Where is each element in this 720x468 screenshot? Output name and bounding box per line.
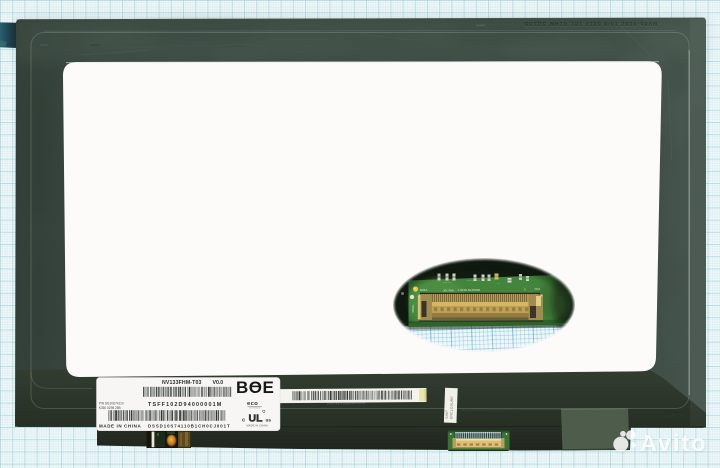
svg-text:C18 C21 R31: C18 C21 R31 <box>466 280 480 282</box>
svg-text:M32A: M32A <box>420 288 427 292</box>
svg-text:1PSD10S74110B1CH0CJ001T: 1PSD10S74110B1CH0CJ001T <box>327 402 366 405</box>
svg-text:NV133FHM-T03: NV133FHM-T03 <box>162 380 202 386</box>
svg-text:DSSD10S74110B1CH0CJ001T: DSSD10S74110B1CH0CJ001T <box>148 423 231 428</box>
svg-text:V: V <box>524 288 526 292</box>
svg-text:BOE: BOE <box>236 378 274 397</box>
svg-text:V0.0: V0.0 <box>213 380 224 386</box>
svg-text:CN1: CN1 <box>535 287 541 291</box>
svg-text:J01 R08: J01 R08 <box>443 289 454 293</box>
svg-text:MADE IN CHINA: MADE IN CHINA <box>247 424 269 427</box>
svg-text:SC1 W71: SC1 W71 <box>666 413 684 418</box>
svg-text:NV0b-910Z 10/0 0810 1ПL 01ЯM З: NV0b-910Z 10/0 0810 1ПL 01ЯM ЗЦ1ПB <box>523 20 657 26</box>
svg-text:K350 0298 25B: K350 0298 25B <box>99 406 121 410</box>
svg-text:ENCLOSURE: ENCLOSURE <box>449 396 454 420</box>
svg-text:MADE IN CHINA: MADE IN CHINA <box>99 423 141 428</box>
svg-text:R12 R13: R12 R13 <box>443 282 452 284</box>
svg-text:1 8F2N B13PWM: 1 8F2N B13PWM <box>458 288 481 292</box>
svg-text:us: us <box>266 419 272 424</box>
svg-text:c: c <box>242 417 245 423</box>
svg-text:MSCL: MSCL <box>411 304 415 313</box>
svg-text:UL: UL <box>249 413 264 425</box>
svg-text:TSFF102D94000001M: TSFF102D94000001M <box>148 402 222 408</box>
svg-text:Avito: Avito <box>640 430 707 456</box>
